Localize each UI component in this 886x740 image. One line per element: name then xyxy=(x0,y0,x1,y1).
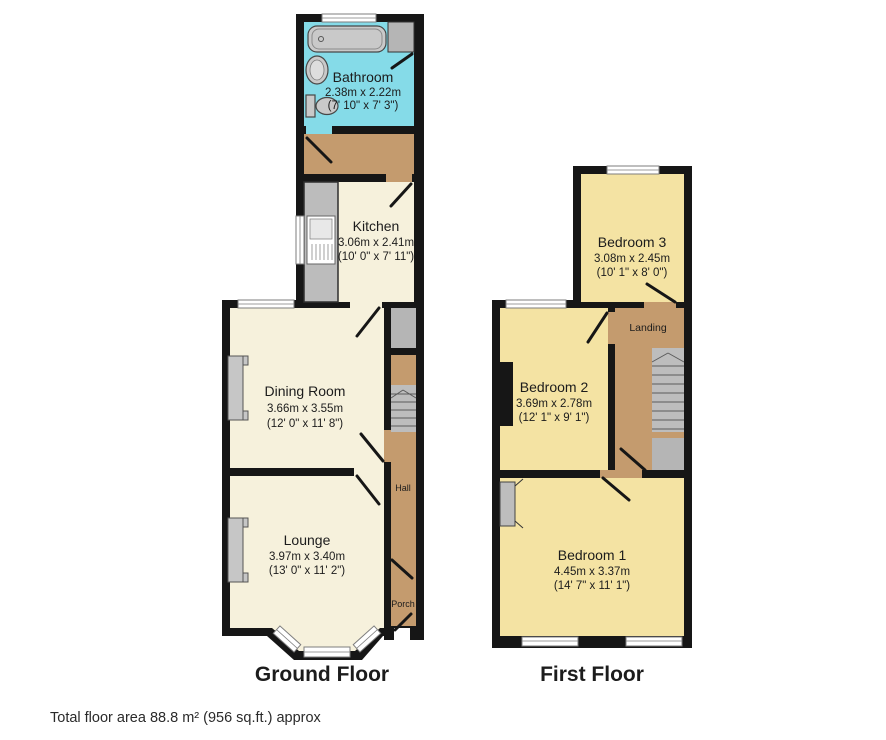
toilet-cistern xyxy=(306,95,315,117)
bathroom-label: Bathroom xyxy=(333,69,394,85)
airing-cupboard xyxy=(388,22,414,52)
porch-label: Porch xyxy=(391,599,415,609)
dining-label: Dining Room xyxy=(265,383,346,399)
first-floor-cupboard xyxy=(652,438,684,470)
bedroom2-chimney-breast xyxy=(500,362,513,426)
bedroom2-label: Bedroom 2 xyxy=(520,379,589,395)
lounge-dims-m: 3.97m x 3.40m xyxy=(269,551,345,563)
first-floor-title: First Floor xyxy=(540,663,644,686)
ground-floor-plan: Bathroom 2.38m x 2.22m (7' 10" x 7' 3") … xyxy=(222,14,424,660)
bedroom3-dims-ft: (10' 1" x 8' 0") xyxy=(597,267,668,279)
dining-window xyxy=(238,300,294,308)
bedroom3-door-opening xyxy=(644,302,676,310)
dining-dims-ft: (12' 0" x 11' 8") xyxy=(267,418,343,430)
kitchen-dims-m: 3.06m x 2.41m xyxy=(338,237,414,249)
lounge-dims-ft: (13' 0" x 11' 2") xyxy=(269,565,345,577)
bay-window-center xyxy=(304,647,350,657)
bedroom1-dims-ft: (14' 7" x 11' 1") xyxy=(554,580,630,592)
kitchen-sink-bowl xyxy=(310,219,332,239)
bedroom1-dims-m: 4.45m x 3.37m xyxy=(554,566,630,578)
floorplan-drawing: Bathroom 2.38m x 2.22m (7' 10" x 7' 3") … xyxy=(0,0,886,740)
bedroom1-door-opening xyxy=(600,470,642,478)
kitchen-label: Kitchen xyxy=(353,218,400,234)
bathroom-dims-m: 2.38m x 2.22m xyxy=(325,87,401,99)
bedroom3-label: Bedroom 3 xyxy=(598,234,667,250)
kitchen-door-opening xyxy=(386,174,412,182)
hall-label: Hall xyxy=(395,483,411,493)
bathroom-dims-ft: (7' 10" x 7' 3") xyxy=(328,100,399,112)
stairs-ground xyxy=(391,385,416,432)
bedroom3-dims-m: 3.08m x 2.45m xyxy=(594,253,670,265)
bedroom3-window xyxy=(607,166,659,174)
landing-label: Landing xyxy=(629,322,667,334)
wash-basin-bowl xyxy=(310,60,324,80)
bathroom-window xyxy=(322,14,376,22)
bedroom1-label: Bedroom 1 xyxy=(558,547,627,563)
bedroom2-dims-ft: (12' 1" x 9' 1") xyxy=(519,412,590,424)
kitchen-dims-ft: (10' 0" x 7' 11") xyxy=(338,251,414,263)
bedroom1-window-right xyxy=(626,637,682,646)
ground-floor-title: Ground Floor xyxy=(255,663,389,686)
understairs-cupboard xyxy=(391,308,416,348)
kitchen-dining-opening xyxy=(350,302,382,308)
bedroom2-door-opening xyxy=(608,312,615,344)
kitchen-window xyxy=(296,216,304,264)
bedroom2-dims-m: 3.69m x 2.78m xyxy=(516,398,592,410)
lounge-label: Lounge xyxy=(284,532,331,548)
rear-lobby-floor xyxy=(304,134,414,174)
lounge-door-opening xyxy=(354,468,384,476)
stairs-first xyxy=(652,348,684,432)
first-floor-plan: Bedroom 3 3.08m x 2.45m (10' 1" x 8' 0")… xyxy=(492,166,692,648)
dining-dims-m: 3.66m x 3.55m xyxy=(267,403,343,415)
bathtub xyxy=(308,26,386,52)
bathroom-door-opening xyxy=(306,126,332,134)
total-area-text: Total floor area 88.8 m² (956 sq.ft.) ap… xyxy=(50,710,322,726)
bedroom1-window-left xyxy=(522,637,578,646)
bedroom2-window xyxy=(506,300,566,308)
dining-hall-opening xyxy=(384,430,391,462)
floorplan-page: Bathroom 2.38m x 2.22m (7' 10" x 7' 3") … xyxy=(0,0,886,740)
